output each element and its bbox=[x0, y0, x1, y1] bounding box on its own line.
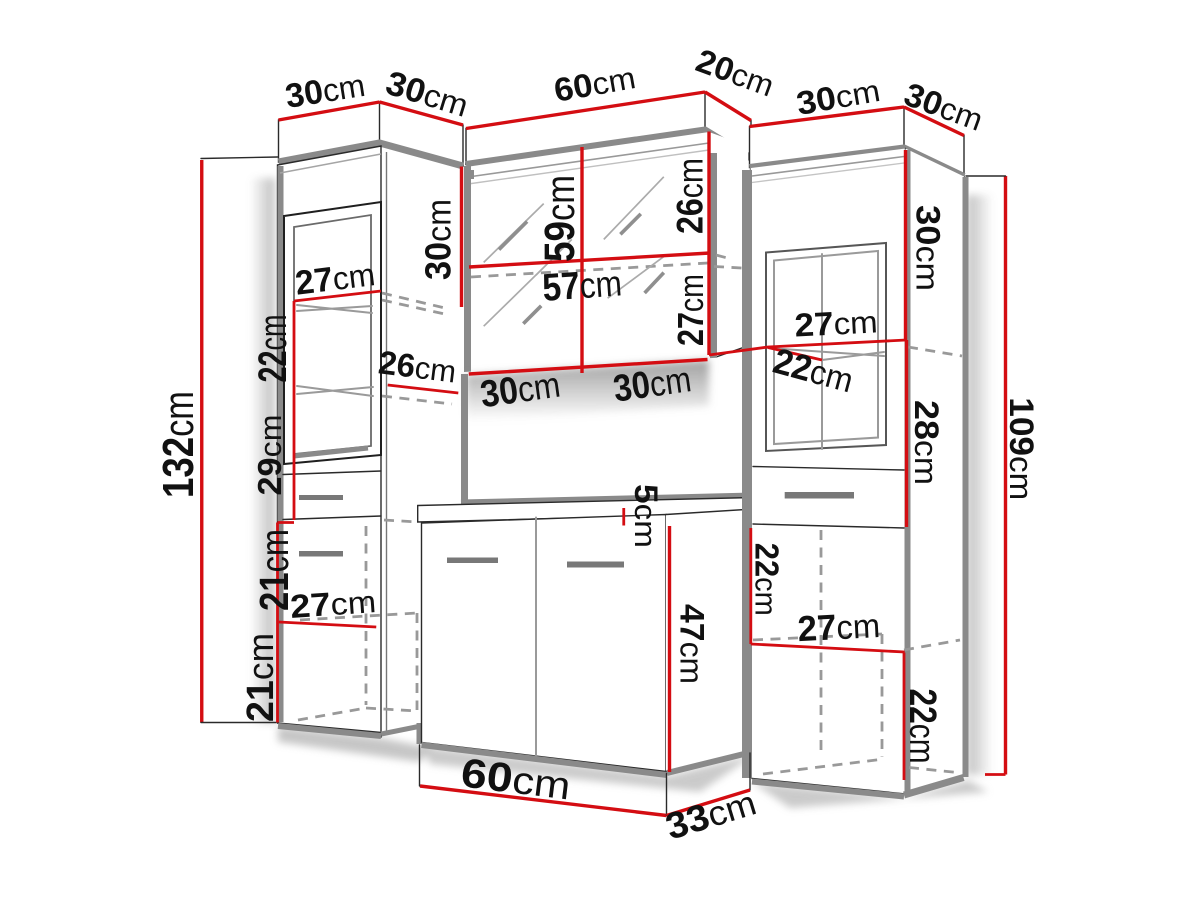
svg-text:27cm: 27cm bbox=[289, 582, 377, 625]
svg-text:109cm: 109cm bbox=[1002, 397, 1040, 500]
svg-text:57cm: 57cm bbox=[541, 261, 623, 309]
svg-text:29cm: 29cm bbox=[251, 415, 288, 496]
svg-text:30cm: 30cm bbox=[418, 199, 459, 280]
svg-text:5cm: 5cm bbox=[628, 484, 664, 548]
svg-text:27cm: 27cm bbox=[794, 302, 879, 343]
svg-text:27cm: 27cm bbox=[796, 604, 881, 649]
svg-text:21cm: 21cm bbox=[251, 529, 297, 611]
svg-text:59cm: 59cm bbox=[537, 175, 584, 262]
svg-text:132cm: 132cm bbox=[154, 391, 203, 498]
svg-text:28cm: 28cm bbox=[907, 400, 945, 485]
svg-text:47cm: 47cm bbox=[673, 604, 711, 684]
svg-text:27cm: 27cm bbox=[670, 274, 711, 346]
svg-text:22cm: 22cm bbox=[748, 543, 785, 616]
svg-text:22cm: 22cm bbox=[901, 689, 943, 764]
svg-text:21cm: 21cm bbox=[240, 633, 282, 722]
svg-text:22cm: 22cm bbox=[251, 315, 295, 383]
svg-text:30cm: 30cm bbox=[908, 205, 946, 291]
svg-text:26cm: 26cm bbox=[670, 158, 711, 234]
